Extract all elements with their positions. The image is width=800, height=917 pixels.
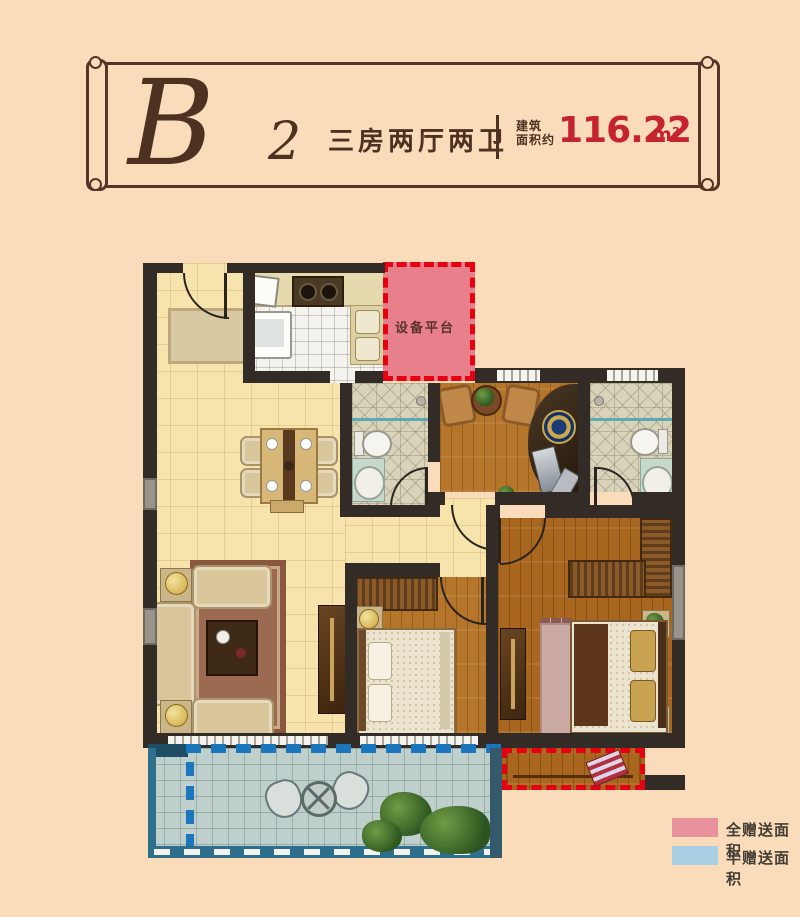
- window: [143, 608, 157, 645]
- dining-chair: [240, 468, 262, 494]
- dining-table: [260, 428, 318, 504]
- layout-description: 三房两厅两卫: [328, 121, 508, 158]
- toilet: [630, 428, 660, 456]
- wall: [672, 640, 685, 748]
- half-gift-dashed-top: [186, 744, 502, 753]
- sink-basin: [355, 337, 380, 361]
- master-rug: [540, 618, 572, 742]
- dining-chair: [240, 436, 262, 462]
- plate: [266, 480, 278, 492]
- kitchen-sink-counter: [350, 305, 385, 365]
- tv-cabinet-living: [318, 605, 346, 714]
- banner-scroll-right: [698, 59, 720, 191]
- wall: [428, 492, 445, 505]
- wall: [578, 383, 590, 505]
- master-door-leaf: [498, 518, 501, 563]
- balcony-table: [301, 781, 337, 817]
- wall: [143, 510, 157, 608]
- banner-scroll-left-curl-top: [89, 56, 102, 69]
- balcony-wall-left: [148, 748, 156, 858]
- wall: [340, 383, 352, 517]
- window: [607, 370, 658, 381]
- cabinet-handle: [330, 618, 334, 701]
- potted-plant: [476, 388, 494, 406]
- toilet-tank: [658, 429, 668, 454]
- plan-letter: B: [128, 64, 215, 182]
- wardrobe-master-horizontal: [568, 560, 646, 598]
- coffee-table: [206, 620, 258, 676]
- shower-screen: [590, 418, 672, 421]
- wall: [486, 505, 498, 748]
- wall: [243, 371, 330, 383]
- wall: [345, 563, 357, 748]
- sink-basin: [355, 310, 380, 334]
- wall: [355, 371, 383, 383]
- wall: [143, 645, 157, 740]
- flower-decor: [236, 648, 246, 658]
- area-label-line2: 面积约: [516, 133, 555, 147]
- equipment-platform: 设备平台: [383, 262, 475, 381]
- stove-burner: [299, 283, 317, 301]
- floorplan-page: B 2 三房两厅两卫 建筑 面积约 116.22 m²: [0, 0, 800, 917]
- window: [143, 478, 157, 510]
- legend-label-half-gift: 半赠送面积: [726, 847, 800, 889]
- plate: [300, 438, 312, 450]
- wall: [345, 563, 440, 577]
- bath2-door-leaf: [594, 467, 597, 505]
- stove-burner: [320, 283, 338, 301]
- bed-bedroom1: [357, 628, 456, 737]
- bath-sink: [354, 466, 385, 500]
- bed-pillow: [368, 684, 392, 722]
- appliance-door: [254, 319, 284, 347]
- legend-swatch-full-gift: [672, 818, 718, 837]
- balcony-plants: [362, 820, 402, 852]
- floor-drain: [416, 396, 426, 406]
- tv-cabinet-master: [500, 628, 526, 720]
- bed-blanket-fold: [440, 632, 450, 729]
- banner-scroll-right-curl-bottom: [701, 178, 714, 191]
- area-unit: m²: [652, 126, 680, 145]
- window: [497, 370, 540, 381]
- wall: [143, 263, 157, 478]
- wall: [632, 492, 672, 505]
- sofa-loveseat-top: [192, 565, 272, 609]
- bed-headboard: [359, 630, 366, 731]
- teapot: [284, 461, 294, 471]
- plate: [300, 480, 312, 492]
- banner-scroll-left: [86, 59, 108, 191]
- header-divider: [496, 115, 499, 159]
- bed-master: [570, 620, 668, 734]
- full-gift-bay-window: [502, 748, 645, 790]
- balcony-wall-right: [490, 748, 502, 858]
- stove: [292, 276, 344, 307]
- bed-dark-blanket: [574, 624, 608, 726]
- entry-door-leaf: [224, 273, 227, 319]
- plan-number: 2: [268, 116, 301, 168]
- balcony-plants: [420, 806, 490, 854]
- compass-decor: [542, 410, 576, 444]
- wall: [243, 273, 255, 371]
- shower-screen: [352, 418, 428, 421]
- table-lamp: [359, 609, 379, 629]
- plate: [266, 438, 278, 450]
- equipment-platform-label: 设备平台: [395, 317, 455, 336]
- tea-set: [216, 630, 230, 644]
- wall: [340, 505, 440, 517]
- floor-drain: [594, 396, 604, 406]
- banner-scroll-right-curl-top: [701, 56, 714, 69]
- bed-pillow: [630, 680, 656, 722]
- bed-pillow: [368, 642, 392, 680]
- legend-swatch-half-gift: [672, 846, 718, 865]
- bed-pillow: [630, 630, 656, 672]
- sofa-long-left: [152, 602, 196, 706]
- wall: [545, 505, 685, 518]
- wall: [495, 492, 590, 505]
- table-lamp: [165, 572, 188, 595]
- table-lamp: [165, 704, 188, 727]
- entry-doormat: [168, 308, 246, 364]
- area-label-line1: 建筑: [516, 119, 542, 133]
- wall: [640, 775, 685, 790]
- dining-bench: [270, 500, 304, 513]
- banner-scroll-left-curl-bottom: [89, 178, 102, 191]
- half-gift-dashed-vertical: [186, 756, 194, 848]
- bed-headboard: [658, 622, 666, 728]
- wall: [428, 383, 440, 462]
- wall: [227, 263, 385, 273]
- toilet: [362, 430, 392, 458]
- cabinet-handle: [511, 639, 515, 709]
- bedroom1-door-leaf: [481, 577, 484, 623]
- wall: [672, 371, 685, 565]
- bay-striped-rug: [585, 749, 628, 787]
- window: [672, 565, 685, 640]
